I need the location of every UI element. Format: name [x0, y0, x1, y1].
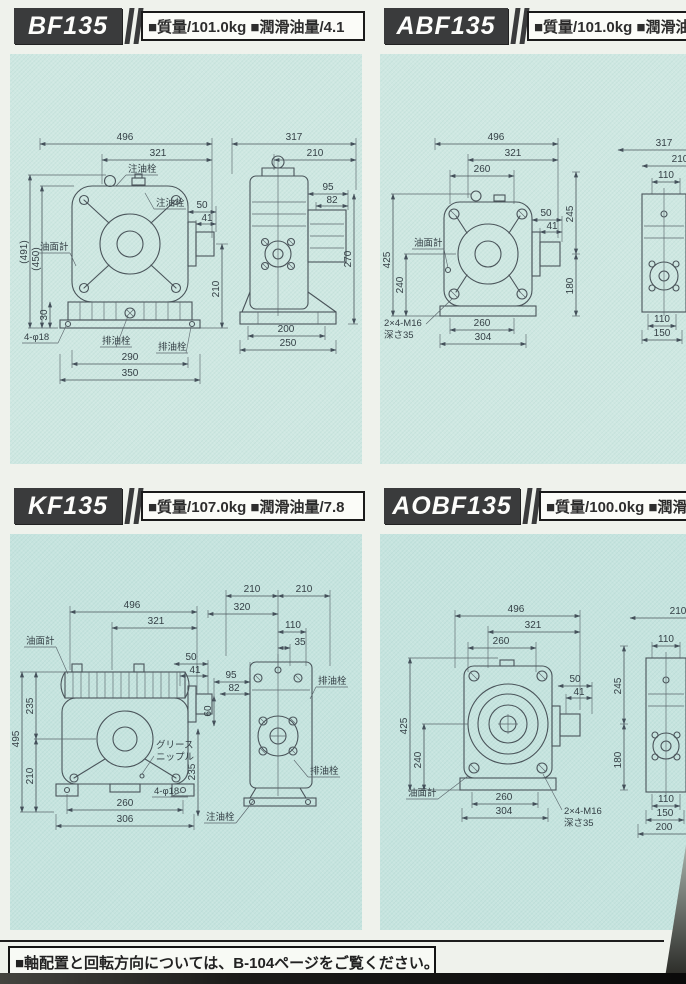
part-label-grease-nipple: ニップル: [156, 752, 195, 763]
dim-label: 50: [196, 200, 208, 211]
dim-label: 30: [39, 309, 50, 321]
dim-label: 304: [496, 806, 513, 817]
header-divider-bars: [127, 488, 141, 524]
dim-label: 496: [117, 132, 134, 143]
abf135-side-view-cut: 317 210 110 110 150: [618, 138, 686, 344]
dim-label: 495: [11, 730, 22, 747]
part-label-tapped-holes: 2×4-M16: [564, 806, 602, 817]
dim-label: 60: [203, 705, 214, 717]
dim-label: 350: [122, 368, 139, 379]
dim-label: 150: [654, 328, 671, 339]
spec-box-aobf135: ■質量/100.0kg ■潤滑油量: [539, 491, 686, 521]
dim-label: 210: [307, 148, 324, 159]
dim-label: 110: [658, 170, 674, 181]
dim-label: 41: [573, 687, 585, 698]
part-label-grease-nipple: グリース: [156, 739, 194, 751]
dim-label: 425: [399, 717, 410, 734]
kf135-side-view: 210 210 320 110 35: [204, 584, 348, 823]
dim-label: 260: [474, 164, 491, 175]
dim-label: 306: [117, 814, 134, 825]
kf135-drawing: 496 321 油面計 495 235 210: [10, 534, 362, 930]
catalog-page: BF135 ■質量/101.0kg ■潤滑油量/4.1 496 321 注油栓 …: [0, 0, 686, 984]
aobf135-drawing: 496 321 260 425 240 50: [380, 534, 686, 930]
dim-label: 110: [285, 620, 301, 631]
kf135-front-view: 496 321 油面計 495 235 210: [11, 600, 214, 830]
part-label-drain: 排油栓: [310, 765, 339, 777]
panel-abf135: 496 321 260 425 240 油面計: [380, 54, 686, 464]
dim-label: 41: [201, 213, 213, 224]
dim-label: 210: [296, 584, 313, 595]
dim-label: 260: [474, 318, 491, 329]
dim-label: 321: [505, 148, 522, 159]
bf135-front-view: 496 321 注油栓 注油栓 (491) (450) 油面計: [19, 132, 228, 384]
dim-label: 35: [294, 637, 306, 648]
dim-label: 496: [508, 604, 525, 615]
dim-label: 95: [225, 670, 237, 681]
header-divider-bars: [525, 488, 539, 524]
dim-label: 260: [117, 798, 134, 809]
model-badge-aobf135: AOBF135: [384, 488, 520, 524]
dim-label: 425: [382, 251, 393, 268]
dim-label: 210: [672, 154, 686, 165]
panel-bf135: 496 321 注油栓 注油栓 (491) (450) 油面計: [10, 54, 362, 464]
bf135-drawing: 496 321 注油栓 注油栓 (491) (450) 油面計: [10, 54, 362, 464]
part-label-drain: 排油栓: [318, 675, 347, 687]
dim-label: 110: [658, 634, 674, 645]
dim-label: (491): [19, 240, 30, 263]
part-label-oil-fill: 注油栓: [206, 811, 235, 823]
dim-label: 210: [670, 606, 686, 617]
header-divider-bars: [513, 8, 527, 44]
dim-label: 50: [569, 674, 581, 685]
part-label-oil-gauge: 油面計: [414, 237, 443, 249]
part-label-oil-gauge: 油面計: [26, 635, 55, 647]
aobf135-front-view: 496 321 260 425 240 50: [399, 604, 628, 829]
panel-kf135: 496 321 油面計 495 235 210: [10, 534, 362, 930]
dim-label: 180: [565, 277, 576, 294]
dim-label: 260: [493, 636, 510, 647]
part-label-oil-fill: 注油栓: [128, 163, 157, 175]
footer-divider: [0, 940, 664, 942]
spec-box-bf135: ■質量/101.0kg ■潤滑油量/4.1: [141, 11, 365, 41]
dim-label: 95: [322, 182, 334, 193]
dim-label: 496: [124, 600, 141, 611]
model-badge-bf135: BF135: [14, 8, 122, 44]
spec-box-abf135: ■質量/101.0kg ■潤滑油量: [527, 11, 686, 41]
dim-label: 82: [326, 195, 338, 206]
dim-label: 321: [148, 616, 165, 627]
dim-label: 210: [211, 280, 222, 297]
abf135-front-view: 496 321 260 425 240 油面計: [382, 132, 580, 348]
header-divider-bars: [127, 8, 141, 44]
part-label-drain: 排油栓: [158, 341, 187, 353]
dim-label: 150: [657, 808, 674, 819]
dim-label: 245: [565, 205, 576, 222]
dim-label: 210: [244, 584, 261, 595]
part-label-tapped-holes: 2×4-M16: [384, 318, 422, 329]
dim-label: 321: [150, 148, 167, 159]
dim-label: 200: [656, 822, 673, 833]
dim-label: 41: [189, 665, 201, 676]
part-label-foot-holes: 4-φ18: [154, 786, 179, 797]
model-badge-kf135: KF135: [14, 488, 122, 524]
spec-box-kf135: ■質量/107.0kg ■潤滑油量/7.8: [141, 491, 365, 521]
part-label-foot-holes: 4-φ18: [24, 332, 49, 343]
dim-label: 240: [413, 751, 424, 768]
dim-label: 180: [613, 751, 624, 768]
dim-label: 235: [187, 763, 198, 780]
dim-label: 245: [613, 677, 624, 694]
part-label-tapped-holes-depth: 深さ35: [384, 330, 414, 341]
dim-label: 270: [343, 250, 354, 267]
dim-label: 321: [525, 620, 542, 631]
dim-label: 304: [475, 332, 492, 343]
part-label-oil-gauge: 油面計: [40, 241, 69, 253]
panel-aobf135: 496 321 260 425 240 50: [380, 534, 686, 930]
dim-label: 110: [658, 794, 674, 805]
dim-label: 317: [656, 138, 673, 149]
part-label-tapped-holes-depth: 深さ35: [564, 818, 594, 829]
dim-label: 235: [25, 697, 36, 714]
dim-label: 260: [496, 792, 513, 803]
dim-label: 50: [185, 652, 197, 663]
dim-label: 320: [234, 602, 251, 613]
dim-label: 200: [278, 324, 295, 335]
part-label-oil-gauge: 油面計: [408, 787, 437, 799]
bf135-side-view: 317 210 95 82 270: [232, 132, 358, 354]
dim-label: 110: [654, 314, 670, 325]
dim-label: 317: [286, 132, 303, 143]
dim-label: 82: [228, 683, 240, 694]
model-badge-abf135: ABF135: [384, 8, 508, 44]
dim-label: 250: [280, 338, 297, 349]
dim-label: 290: [122, 352, 139, 363]
dim-label: 41: [546, 221, 558, 232]
dim-label: 210: [25, 767, 36, 784]
dim-label: 50: [540, 208, 552, 219]
abf135-drawing: 496 321 260 425 240 油面計: [380, 54, 686, 464]
dim-label: 496: [488, 132, 505, 143]
dim-label: 240: [395, 276, 406, 293]
aobf135-side-view-cut: 210 110 110 150 200: [630, 606, 686, 838]
page-bottom-edge: [0, 973, 686, 984]
